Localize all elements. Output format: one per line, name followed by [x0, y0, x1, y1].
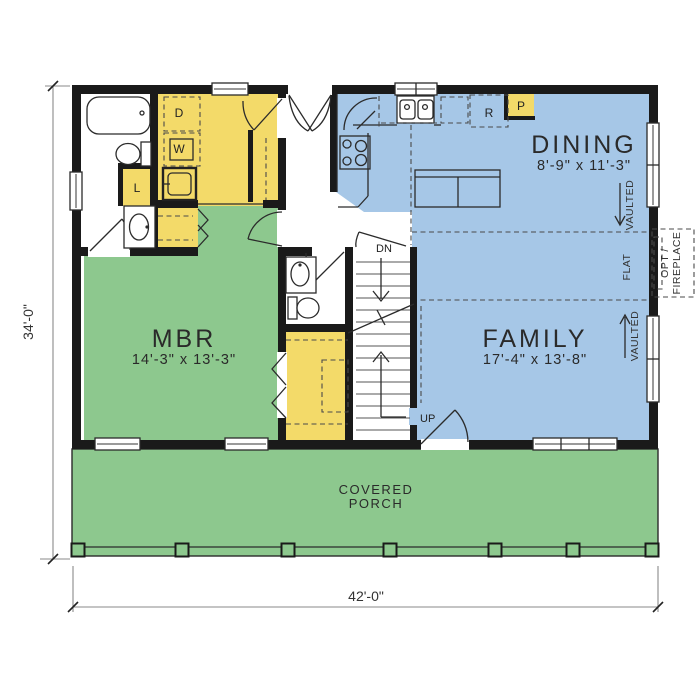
room-yellow-broom-closet	[152, 204, 198, 250]
dimension-height-label: 34'-0"	[20, 304, 36, 340]
kitchen-sink-icon	[397, 96, 434, 123]
floor-plan-canvas: OPT / FIREPLACE VAULTED FLAT VAULTED DIN…	[0, 0, 700, 700]
wall-halfbath-south	[278, 324, 353, 332]
fireplace-label-line1: OPT /	[659, 248, 671, 278]
window-family-right	[647, 316, 659, 402]
stair-break-line	[348, 304, 414, 333]
wall-stairs-west	[345, 247, 353, 440]
window-kitchen-sink	[395, 83, 437, 95]
dining-size: 8'-9" x 11'-3"	[537, 158, 631, 174]
vanity-halfbath-icon	[286, 257, 316, 293]
flat-label: FLAT	[621, 253, 633, 280]
wall-entry-west-b	[278, 138, 286, 210]
stair-up-label: UP	[420, 413, 435, 425]
toilet-master-icon	[116, 142, 151, 166]
wall-pantry-bottom	[504, 116, 535, 120]
porch-label-line1: COVERED	[339, 482, 414, 497]
wall-entry-west-a	[278, 94, 286, 98]
opening-front-door	[288, 84, 332, 95]
window-mbr-2	[225, 438, 268, 450]
optional-fireplace: OPT / FIREPLACE	[652, 229, 694, 297]
fireplace-label-line2: FIREPLACE	[671, 232, 683, 295]
dimension-width-label: 42'-0"	[348, 588, 384, 604]
stair-up-arrow	[373, 352, 406, 417]
washer-label: W	[173, 142, 185, 156]
window-top-left	[212, 83, 248, 95]
pantry-label: P	[517, 99, 525, 113]
family-size: 17'-4" x 13'-8"	[483, 352, 587, 368]
window-mbr-1	[95, 438, 140, 450]
dimension-left: 34'-0"	[20, 81, 70, 564]
utility-sink-icon	[163, 168, 196, 200]
window-bath-left	[70, 172, 82, 210]
refrigerator-label: R	[485, 106, 494, 120]
wall-entry-closet	[248, 130, 253, 202]
dryer-label: D	[175, 106, 184, 120]
floor-plan: OPT / FIREPLACE VAULTED FLAT VAULTED DIN…	[0, 0, 700, 700]
stair-treads	[356, 262, 410, 430]
family-label: FAMILY	[482, 325, 587, 353]
front-door	[289, 95, 331, 131]
vaulted-dining-label: VAULTED	[624, 180, 636, 230]
room-yellow-mbr-closet	[282, 330, 350, 442]
vaulted-family-label: VAULTED	[629, 311, 641, 361]
opening-mbr-door	[277, 210, 287, 247]
wall-stairs-east	[410, 247, 417, 408]
wall-halfbath-north-a	[286, 247, 312, 256]
wall-linen-left	[118, 163, 123, 206]
window-family-triple	[533, 438, 617, 450]
linen-label: L	[134, 181, 141, 195]
stair-down-label: DN	[376, 243, 392, 255]
mbr-label: MBR	[152, 325, 217, 353]
dimension-bottom: 42'-0"	[68, 566, 663, 612]
toilet-halfbath-icon	[288, 297, 319, 319]
wall-stairs-east-stub	[410, 425, 417, 449]
wall-mbr-top-a	[81, 247, 88, 256]
wall-left	[72, 85, 81, 449]
bathtub-icon	[87, 97, 150, 134]
flat-annotation: FLAT	[621, 253, 633, 280]
window-dining-right	[647, 123, 659, 207]
wall-center-west-c	[278, 418, 286, 449]
porch-label-line2: PORCH	[349, 496, 403, 511]
opening-porch-door	[421, 439, 469, 450]
wall-center-west	[278, 247, 286, 352]
wall-top	[72, 85, 658, 94]
mbr-size: 14'-3" x 13'-3"	[132, 352, 236, 368]
stair-down-arrow	[373, 258, 389, 301]
dining-label: DINING	[531, 131, 637, 159]
vanity-master-icon	[124, 206, 155, 248]
wall-entry-kitchen	[330, 85, 337, 192]
opening-stair-entry	[409, 408, 418, 425]
opening-entry-closet-door	[277, 98, 287, 138]
